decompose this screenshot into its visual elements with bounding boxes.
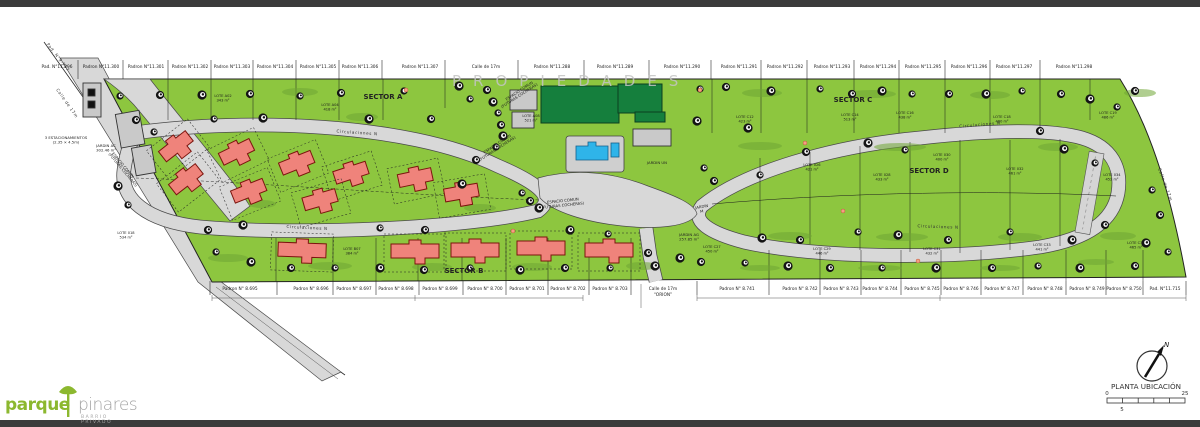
lot-area-label: 480 m² — [996, 119, 1010, 123]
tree-icon — [1059, 144, 1068, 153]
padron-label-bottom: Padron N° 8.701 — [509, 286, 544, 292]
shrub-patch — [1100, 232, 1136, 240]
padron-label-top: Padron N°11.297 — [996, 64, 1033, 70]
padron-label-bottom: Pad. N°11.715 — [1150, 286, 1181, 292]
tree-icon — [1148, 186, 1155, 193]
tree-icon — [1006, 228, 1013, 235]
tree-icon — [116, 92, 123, 99]
lot-area-label: 534 m² — [120, 235, 134, 239]
padron-label-bottom: Padron N° 8.696 — [293, 286, 328, 292]
tree-icon — [427, 115, 435, 123]
legend: N PLANTA UBICACIÓN 0 25 5 — [1105, 341, 1189, 413]
lot-label: LOTE 034 — [1103, 173, 1121, 177]
tree-icon — [156, 91, 164, 99]
padron-label-top: Calle de 17m — [472, 64, 500, 70]
lot-area-label: 432 m² — [926, 251, 940, 255]
lot-label: LOTE C18 — [993, 115, 1011, 119]
dimension-lines — [212, 284, 1186, 379]
shrub-patch — [1038, 143, 1078, 151]
watermark-text: PROPIEDADES — [452, 72, 690, 90]
tree-icon — [421, 226, 429, 234]
lot-area-label: 513 m² — [844, 117, 858, 121]
tree-icon — [854, 228, 861, 235]
tree-icon — [526, 197, 534, 205]
tree-icon — [331, 264, 338, 271]
lot-area-label: 343 m² — [217, 98, 231, 102]
lot-label: LOTE A08 — [522, 114, 540, 118]
padron-label-bottom: Padron N° 8.742 — [782, 286, 817, 292]
padron-label-top: Padron N°11.301 — [128, 64, 165, 70]
padron-label-top: Padron N°11.291 — [721, 64, 758, 70]
parking-structure — [83, 83, 101, 117]
tree-icon — [766, 86, 775, 95]
shrub-patch — [768, 232, 812, 240]
tree-icon — [457, 179, 466, 188]
tree-icon — [515, 265, 524, 274]
shrub-patch — [742, 89, 782, 97]
padron-label-bottom: Padron N° 8.703 — [592, 286, 627, 292]
tree-icon — [204, 226, 212, 234]
lot-area-label: 521 m² — [525, 118, 539, 122]
tree-icon — [258, 113, 267, 122]
tree-icon — [561, 264, 569, 272]
lot-label: LOTE C31 — [923, 247, 940, 251]
padron-label-top: Padron N°11.289 — [597, 64, 634, 70]
tree-icon — [565, 225, 574, 234]
lot-label: LOTE 030 — [933, 153, 951, 157]
logo-pinares: pinares — [78, 395, 137, 415]
legend-title: PLANTA UBICACIÓN — [1111, 382, 1181, 391]
lot-label: LOTE A04 — [321, 103, 339, 107]
tree-icon — [212, 248, 219, 255]
padron-label-bottom: Padron N° 8.750 — [1106, 286, 1141, 292]
shrub-patch — [208, 254, 248, 262]
lot-area-label: 441 m² — [1036, 247, 1050, 251]
tree-icon — [877, 86, 886, 95]
lot-label: LOTE 026 — [803, 163, 821, 167]
tree-icon — [802, 148, 810, 156]
tree-icon — [197, 90, 206, 99]
tree-icon — [1131, 262, 1139, 270]
tree-icon — [988, 264, 996, 272]
sector-label: SECTOR A — [364, 93, 404, 101]
tree-icon — [908, 90, 915, 97]
master-plan-drawing: PROPIEDADES Pad. N°11.296Padron N°11.300… — [0, 0, 1200, 427]
shrub-patch — [1078, 259, 1114, 265]
tree-icon — [1075, 263, 1084, 272]
tree-icon — [376, 224, 383, 231]
padron-label-bottom: Padron N° 8.746 — [943, 286, 978, 292]
tree-icon — [743, 123, 752, 132]
tree-icon — [931, 263, 940, 272]
padron-label-top: Padron N°11.303 — [214, 64, 251, 70]
kids-pool — [611, 143, 619, 157]
padron-label-bottom: Padron N° 8.697 — [336, 286, 371, 292]
sector-label: SECTOR C — [834, 96, 873, 104]
service-marker — [916, 259, 920, 263]
tree-icon — [1034, 262, 1041, 269]
padron-label-top: Padron N°11.298 — [1056, 64, 1093, 70]
padron-label-bottom: Padron N° 8.745 — [904, 286, 939, 292]
lot-label: LOTE C27 — [703, 245, 720, 249]
tree-icon — [466, 95, 473, 102]
tree-icon — [238, 220, 247, 229]
lot-area-label: 446 m² — [816, 251, 830, 255]
lot-label: LOTE C29 — [813, 247, 831, 251]
tree-icon — [1018, 87, 1025, 94]
sector-label: SECTOR D — [909, 167, 949, 175]
area-annotation: JARDIN UN — [646, 160, 667, 165]
padron-label-top: Padron N°11.290 — [664, 64, 701, 70]
padron-label-bottom: Padron N° 8.741 — [719, 286, 754, 292]
lot-label: LOTE C19 — [1099, 111, 1117, 115]
tree-icon — [246, 257, 255, 266]
lot-area-label: 421 m² — [806, 167, 820, 171]
tree-icon — [604, 230, 611, 237]
tree-icon — [1057, 90, 1065, 98]
tree-icon — [1156, 211, 1164, 219]
tree-icon — [757, 233, 766, 242]
padron-label-bottom: Padron N° 8.744 — [862, 286, 897, 292]
lot-label: LOTE 028 — [873, 173, 891, 177]
scale-bar — [1107, 398, 1185, 403]
tree-icon — [494, 109, 501, 116]
tree-icon — [893, 230, 902, 239]
padron-label-bottom: Padron N° 8.747 — [984, 286, 1019, 292]
tree-icon — [816, 85, 823, 92]
pool-area — [566, 136, 624, 172]
tree-icon — [863, 138, 872, 147]
padron-label-bottom: Padron N° 8.700 — [467, 286, 502, 292]
shrub-patch — [980, 265, 1020, 271]
north-arrow-needle — [1145, 354, 1159, 377]
tree-icon — [132, 116, 140, 124]
lot-area-label: 384 m² — [346, 251, 360, 255]
padron-label-bottom: Padron N° 8.695 — [222, 286, 257, 292]
tree-icon — [518, 189, 525, 196]
tree-icon — [364, 114, 373, 123]
tree-icon — [878, 264, 885, 271]
logo: parque pinares BARRIO PRIVADO — [5, 383, 135, 423]
tree-icon — [113, 181, 122, 190]
padron-label-top: Padron N°11.295 — [905, 64, 942, 70]
padron-label-bottom: Padron N° 8.702 — [550, 286, 585, 292]
tree-icon — [1101, 221, 1109, 229]
padron-label-top: Padron N°11.306 — [342, 64, 379, 70]
padron-label-top: Padron N°11.302 — [172, 64, 209, 70]
lot-area-label: 486 m² — [1102, 115, 1116, 119]
lot-label: LOTE C35 — [1127, 241, 1144, 245]
tree-icon — [692, 116, 701, 125]
service-marker — [511, 229, 515, 233]
area-annotation-line2: (2.35 × 4.5m) — [53, 140, 80, 145]
tree-icon — [1085, 94, 1094, 103]
north-label: N — [1164, 341, 1170, 349]
tree-icon — [1067, 235, 1076, 244]
tree-icon — [420, 266, 428, 274]
tree-icon — [246, 90, 254, 98]
lot-label: LOTE 032 — [1006, 167, 1023, 171]
lot-area-label: 465 m² — [1130, 245, 1144, 249]
tree-icon — [796, 236, 804, 244]
padron-label-bottom: Padron N° 8.749 — [1069, 286, 1104, 292]
padron-label-bottom: Padron N° 8.748 — [1027, 286, 1062, 292]
tree-icon — [1131, 87, 1139, 95]
shrub-patch — [1124, 89, 1156, 97]
tree-icon — [697, 258, 705, 266]
tree-icon — [741, 259, 748, 266]
service-marker — [404, 88, 408, 92]
padron-label-bottom-line2: “ORION” — [654, 292, 673, 298]
tree-icon — [756, 171, 763, 178]
tree-icon — [644, 249, 652, 257]
padron-label-bottom: Calle de 17m — [649, 286, 677, 292]
tree-icon — [675, 253, 684, 262]
lot-area-label: 433 m² — [876, 177, 890, 181]
padron-label-bottom: Padron N° 8.698 — [378, 286, 413, 292]
tree-icon — [783, 261, 792, 270]
service-marker — [803, 141, 807, 145]
padron-label-top: Padron N°11.300 — [83, 64, 120, 70]
tree-icon — [497, 121, 505, 129]
padron-label-bottom: Padron N° 8.743 — [823, 286, 858, 292]
scale-start: 0 — [1105, 391, 1109, 397]
padron-label-top: Padron N°11.307 — [402, 64, 439, 70]
tree-icon — [210, 115, 217, 122]
service-marker — [841, 209, 845, 213]
scale-sub: 5 — [1120, 407, 1124, 413]
logo-subtitle: BARRIO PRIVADO — [81, 415, 135, 425]
lot-label: LOTE 018 — [117, 231, 135, 235]
tree-icon — [981, 89, 990, 98]
padron-label-top: Padron N°11.305 — [300, 64, 337, 70]
tree-icon — [710, 177, 718, 185]
lot-label: LOTE C16 — [896, 111, 914, 115]
area-annotation-line2: 257.85 m² — [679, 237, 699, 242]
tree-icon — [650, 261, 659, 270]
lot-area-label: 418 m² — [324, 107, 338, 111]
sector-label: SECTOR B — [445, 267, 484, 275]
tree-icon — [375, 263, 384, 272]
tree-icon — [1164, 248, 1171, 255]
service-marker — [698, 88, 702, 92]
tree-icon — [1036, 127, 1044, 135]
pine-tree-icon — [57, 383, 79, 419]
tree-icon — [337, 89, 345, 97]
tree-icon — [722, 83, 730, 91]
lot-area-label: 450 m² — [706, 249, 720, 253]
shrub-patch — [998, 233, 1042, 241]
shrub-patch — [738, 142, 782, 150]
tree-icon — [150, 128, 157, 135]
tree-icon — [901, 146, 908, 153]
padron-label-top: Padron N°11.304 — [257, 64, 294, 70]
tree-icon — [1091, 159, 1098, 166]
site-plan-page: PROPIEDADES Pad. N°11.296Padron N°11.300… — [0, 0, 1200, 427]
shrub-patch — [874, 143, 926, 151]
padron-label-top: Padron N°11.292 — [767, 64, 804, 70]
tree-icon — [945, 90, 953, 98]
lot-label: LOTE C12 — [736, 115, 753, 119]
tree-icon — [700, 164, 707, 171]
tree-icon — [296, 92, 303, 99]
tree-icon — [488, 97, 497, 106]
tree-icon — [606, 264, 613, 271]
padron-label-top: Padron N°11.288 — [534, 64, 571, 70]
scale-end: 25 — [1182, 391, 1189, 397]
padron-label-bottom: Padron N° 8.699 — [422, 286, 457, 292]
lot-label: LOTE C33 — [1033, 243, 1050, 247]
lot-label: LOTE A02 — [214, 94, 231, 98]
tree-icon — [1113, 103, 1120, 110]
tree-icon — [287, 264, 295, 272]
padron-label-top: Padron N°11.293 — [814, 64, 851, 70]
lot-area-label: 438 m² — [899, 115, 913, 119]
street-label: Calle de 17m — [55, 87, 79, 118]
lot-area-label: 423 m² — [739, 119, 753, 123]
tree-icon — [944, 236, 952, 244]
tree-icon — [124, 201, 131, 208]
padron-label-top: Padron N°11.294 — [860, 64, 897, 70]
service-building — [633, 129, 671, 146]
lot-label: LOTE B07 — [343, 247, 360, 251]
lot-area-label: 452 m² — [1106, 177, 1120, 181]
lot-area-label: 400 m² — [936, 157, 950, 161]
padron-label-top: Padron N°11.296 — [951, 64, 988, 70]
shrub-patch — [308, 262, 352, 270]
lot-area-label: 461 m² — [1009, 171, 1023, 175]
lot-label: LOTE C14 — [841, 113, 859, 117]
tree-icon — [826, 264, 834, 272]
